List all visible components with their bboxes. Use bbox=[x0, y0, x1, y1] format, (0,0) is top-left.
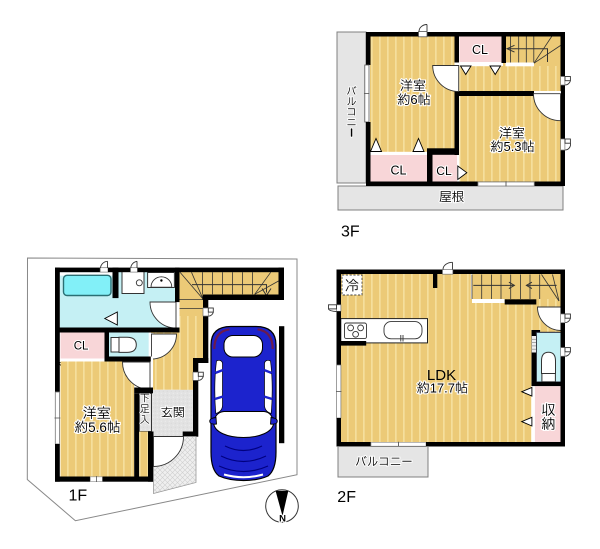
svg-text:5: 5 bbox=[88, 420, 96, 435]
svg-text:L: L bbox=[445, 164, 452, 178]
svg-text:C: C bbox=[436, 164, 445, 178]
svg-text:7: 7 bbox=[437, 381, 444, 396]
svg-text:7: 7 bbox=[448, 381, 455, 396]
svg-text:6: 6 bbox=[99, 420, 107, 435]
svg-text:3F: 3F bbox=[341, 223, 360, 240]
svg-text:L: L bbox=[400, 164, 407, 178]
svg-text:5: 5 bbox=[504, 139, 511, 154]
svg-text:L: L bbox=[82, 341, 89, 353]
svg-text:3: 3 bbox=[514, 139, 521, 154]
svg-text:C: C bbox=[391, 164, 400, 178]
svg-text:L: L bbox=[481, 43, 488, 57]
svg-text:6: 6 bbox=[410, 92, 417, 107]
svg-text:1F: 1F bbox=[69, 487, 88, 504]
svg-text:2F: 2F bbox=[337, 489, 356, 506]
svg-text:C: C bbox=[472, 43, 481, 57]
svg-text:C: C bbox=[74, 341, 82, 353]
svg-text:1: 1 bbox=[430, 381, 437, 396]
svg-text:N: N bbox=[279, 514, 286, 525]
